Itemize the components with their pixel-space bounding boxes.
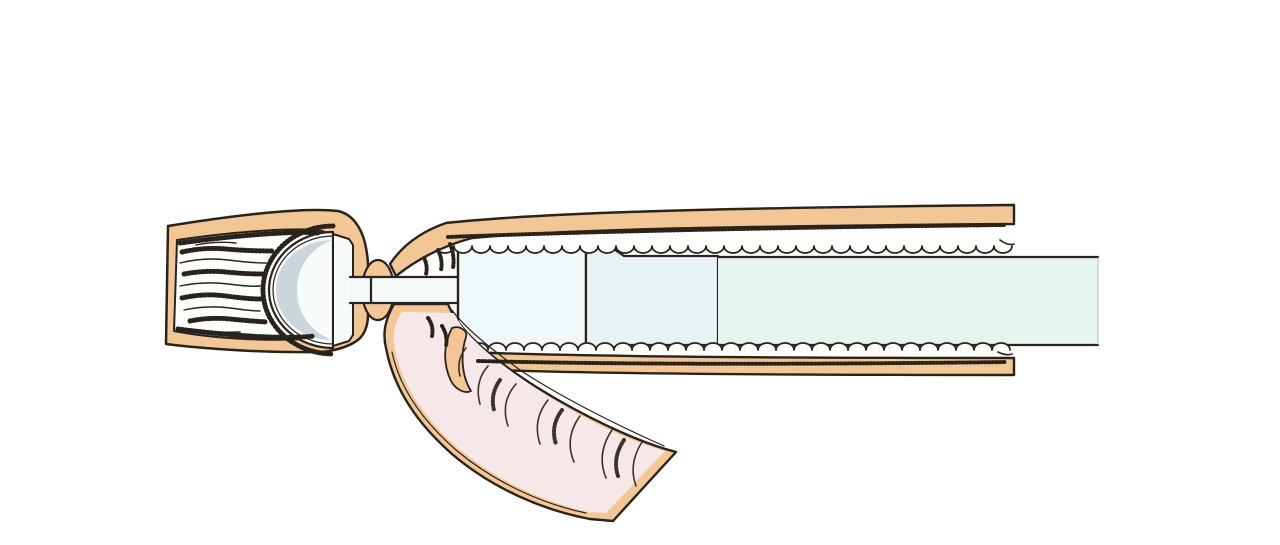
medical-illustration-canvas: [0, 0, 1280, 545]
anvil-rod-body: [350, 277, 462, 303]
stapler-long-shaft: [718, 257, 1098, 345]
stapler-body-collar: [624, 256, 718, 345]
anvil-rod: [350, 277, 462, 303]
